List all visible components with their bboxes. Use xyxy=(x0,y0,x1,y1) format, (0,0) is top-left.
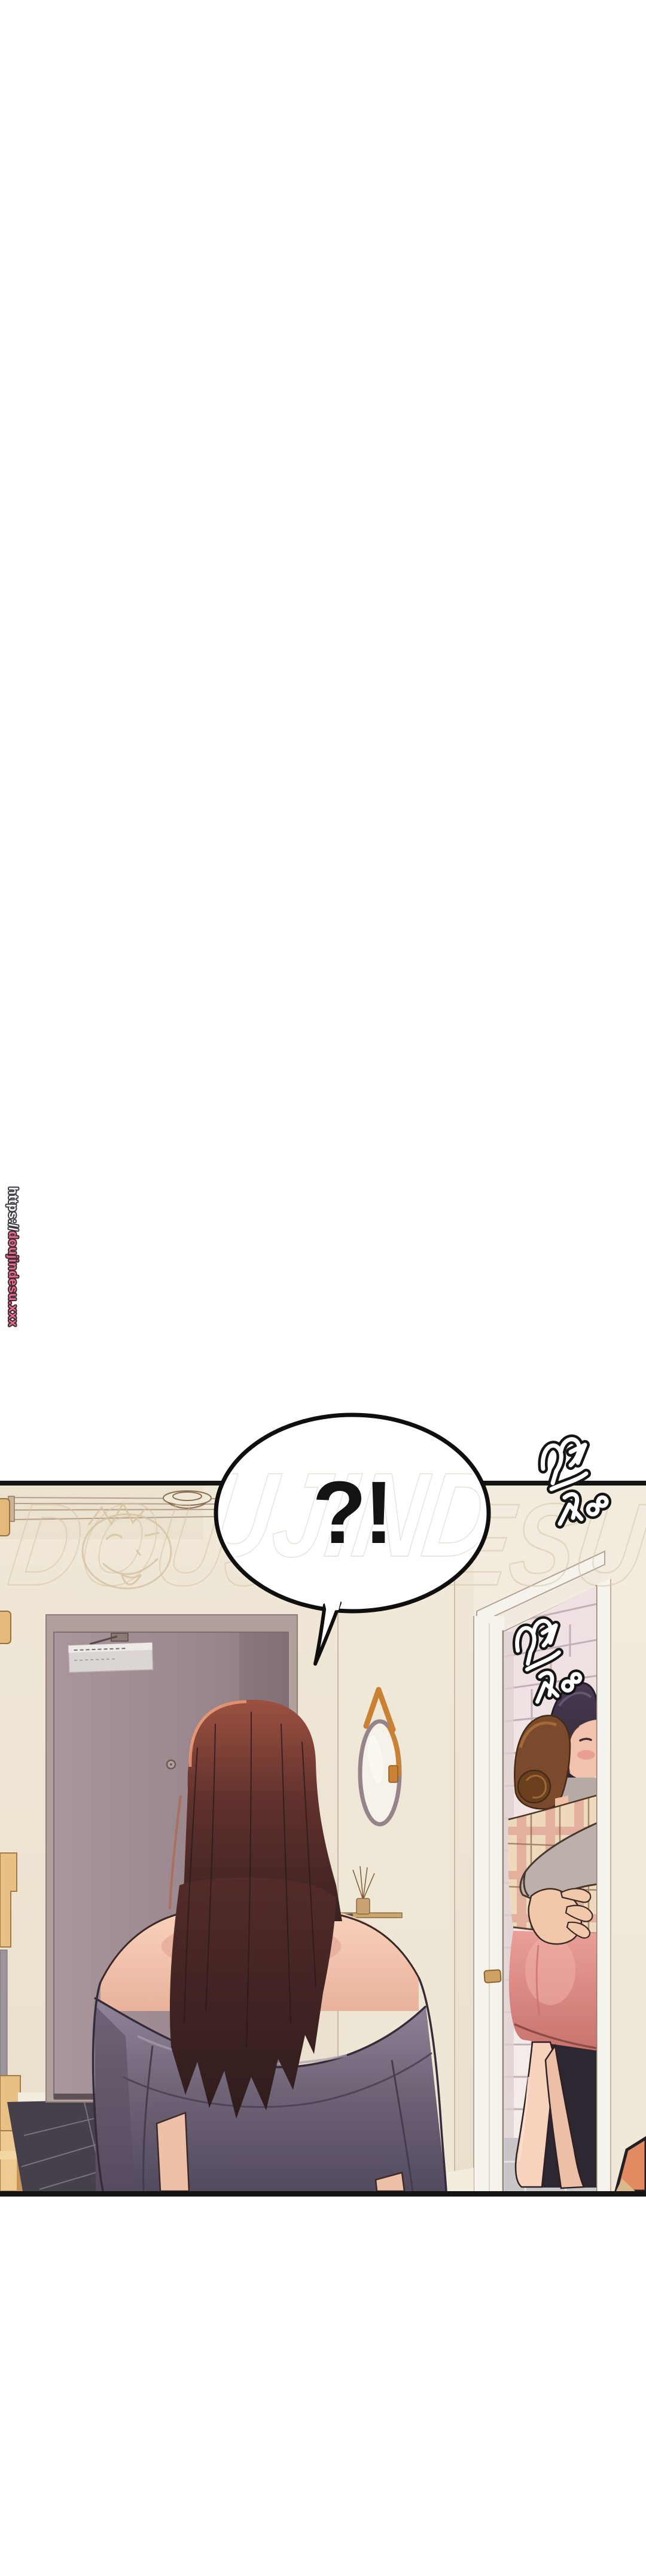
door-knob xyxy=(167,1760,175,1769)
left-hand xyxy=(157,2113,189,2191)
notice-paper xyxy=(68,1643,153,1673)
url-watermark-domain: doujindesu.xxx xyxy=(6,1231,20,1327)
speech-bubble-text: ?! xyxy=(312,1463,391,1562)
webtoon-page: DOUJINDESU xyxy=(0,0,646,2576)
blush xyxy=(577,1750,595,1760)
url-watermark-protocol: https:// xyxy=(6,1187,20,1231)
comic-art: DOUJINDESU xyxy=(0,0,646,2576)
url-watermark: https://doujindesu.xxx xyxy=(5,1187,20,1327)
door-latch xyxy=(484,1970,501,1983)
panel-border-bottom xyxy=(0,2191,646,2197)
